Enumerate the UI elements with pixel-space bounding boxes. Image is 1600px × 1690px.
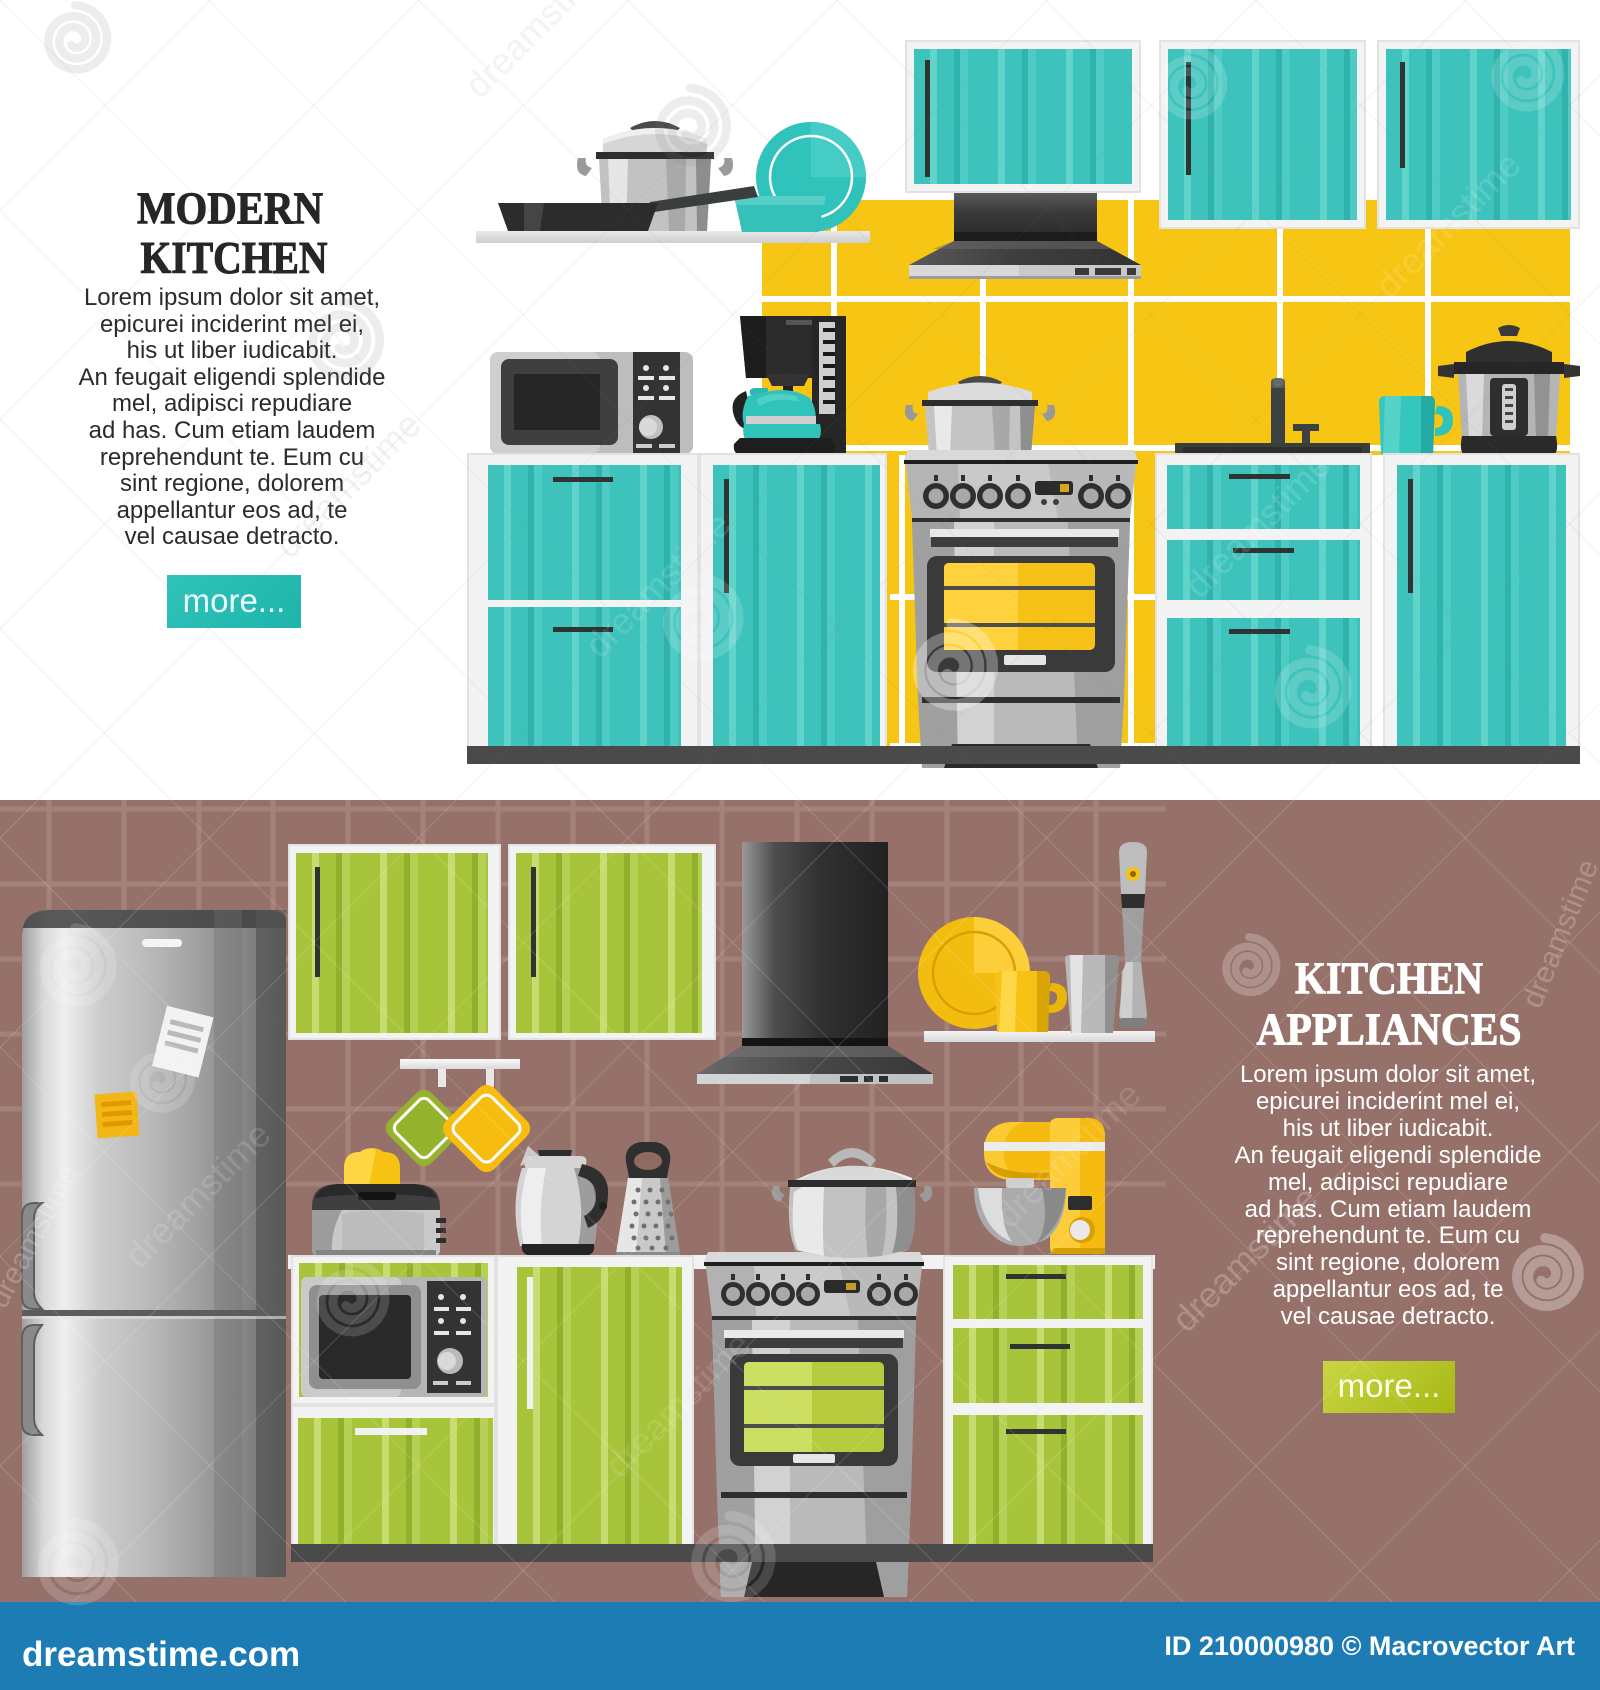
svg-text:KITCHEN: KITCHEN: [1295, 954, 1483, 1004]
svg-text:MODERN: MODERN: [137, 184, 323, 234]
svg-text:dreamstime.com: dreamstime.com: [22, 1635, 300, 1674]
svg-text:KITCHEN: KITCHEN: [141, 233, 328, 283]
svg-text:APPLIANCES: APPLIANCES: [1257, 1005, 1522, 1055]
